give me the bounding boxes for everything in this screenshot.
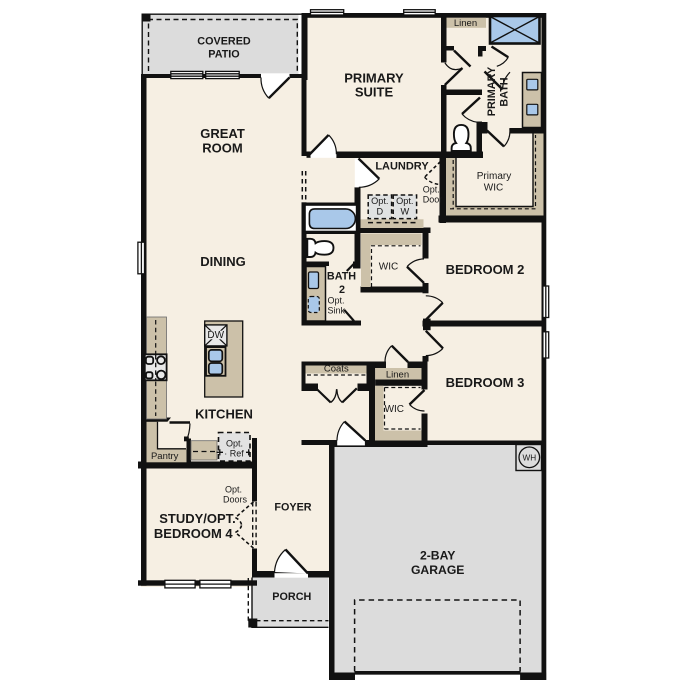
svg-text:STUDY/OPT.: STUDY/OPT. [159, 511, 236, 526]
svg-text:LAUNDRY: LAUNDRY [375, 160, 429, 172]
svg-text:Coats: Coats [324, 364, 349, 375]
svg-text:DW: DW [207, 330, 224, 341]
svg-text:D: D [376, 206, 383, 216]
svg-text:Door: Door [423, 195, 443, 205]
svg-text:WIC: WIC [484, 183, 503, 194]
svg-text:Opt.: Opt. [225, 485, 242, 495]
svg-text:BEDROOM 2: BEDROOM 2 [446, 262, 525, 277]
svg-text:ROOM: ROOM [202, 141, 242, 156]
svg-text:2-BAY: 2-BAY [420, 549, 455, 563]
svg-text:· Ref: · Ref [224, 449, 244, 459]
svg-text:PRIMARY: PRIMARY [344, 71, 404, 86]
svg-text:Linen: Linen [386, 370, 409, 381]
svg-text:KITCHEN: KITCHEN [195, 407, 253, 422]
svg-text:Opt.: Opt. [423, 185, 440, 195]
svg-text:GARAGE: GARAGE [411, 563, 465, 577]
svg-text:PRIMARY: PRIMARY [486, 66, 498, 116]
svg-text:PORCH: PORCH [272, 591, 311, 603]
svg-text:WIC: WIC [379, 262, 398, 273]
svg-text:BATH: BATH [327, 271, 356, 283]
svg-text:COVERED: COVERED [197, 36, 251, 48]
svg-text:BEDROOM 4: BEDROOM 4 [154, 526, 234, 541]
svg-text:Linen: Linen [454, 18, 477, 29]
svg-text:Sink: Sink [328, 306, 346, 316]
svg-text:W: W [400, 206, 409, 216]
svg-text:Pantry: Pantry [151, 451, 179, 462]
svg-text:2: 2 [339, 284, 345, 296]
svg-text:Opt.: Opt. [396, 196, 413, 206]
svg-text:WIC: WIC [385, 404, 404, 415]
svg-text:BATH: BATH [499, 77, 511, 106]
svg-text:SUITE: SUITE [355, 85, 394, 100]
svg-text:Primary: Primary [477, 171, 511, 182]
svg-text:FOYER: FOYER [274, 502, 311, 514]
svg-text:Opt.: Opt. [371, 196, 388, 206]
svg-text:Doors: Doors [223, 495, 248, 505]
svg-text:WH: WH [522, 454, 536, 463]
svg-text:Opt.: Opt. [328, 296, 345, 306]
svg-text:GREAT: GREAT [200, 126, 245, 141]
svg-text:BEDROOM 3: BEDROOM 3 [446, 375, 525, 390]
svg-text:PATIO: PATIO [208, 49, 239, 61]
svg-text:DINING: DINING [200, 254, 246, 269]
svg-text:Opt.: Opt. [226, 439, 243, 449]
